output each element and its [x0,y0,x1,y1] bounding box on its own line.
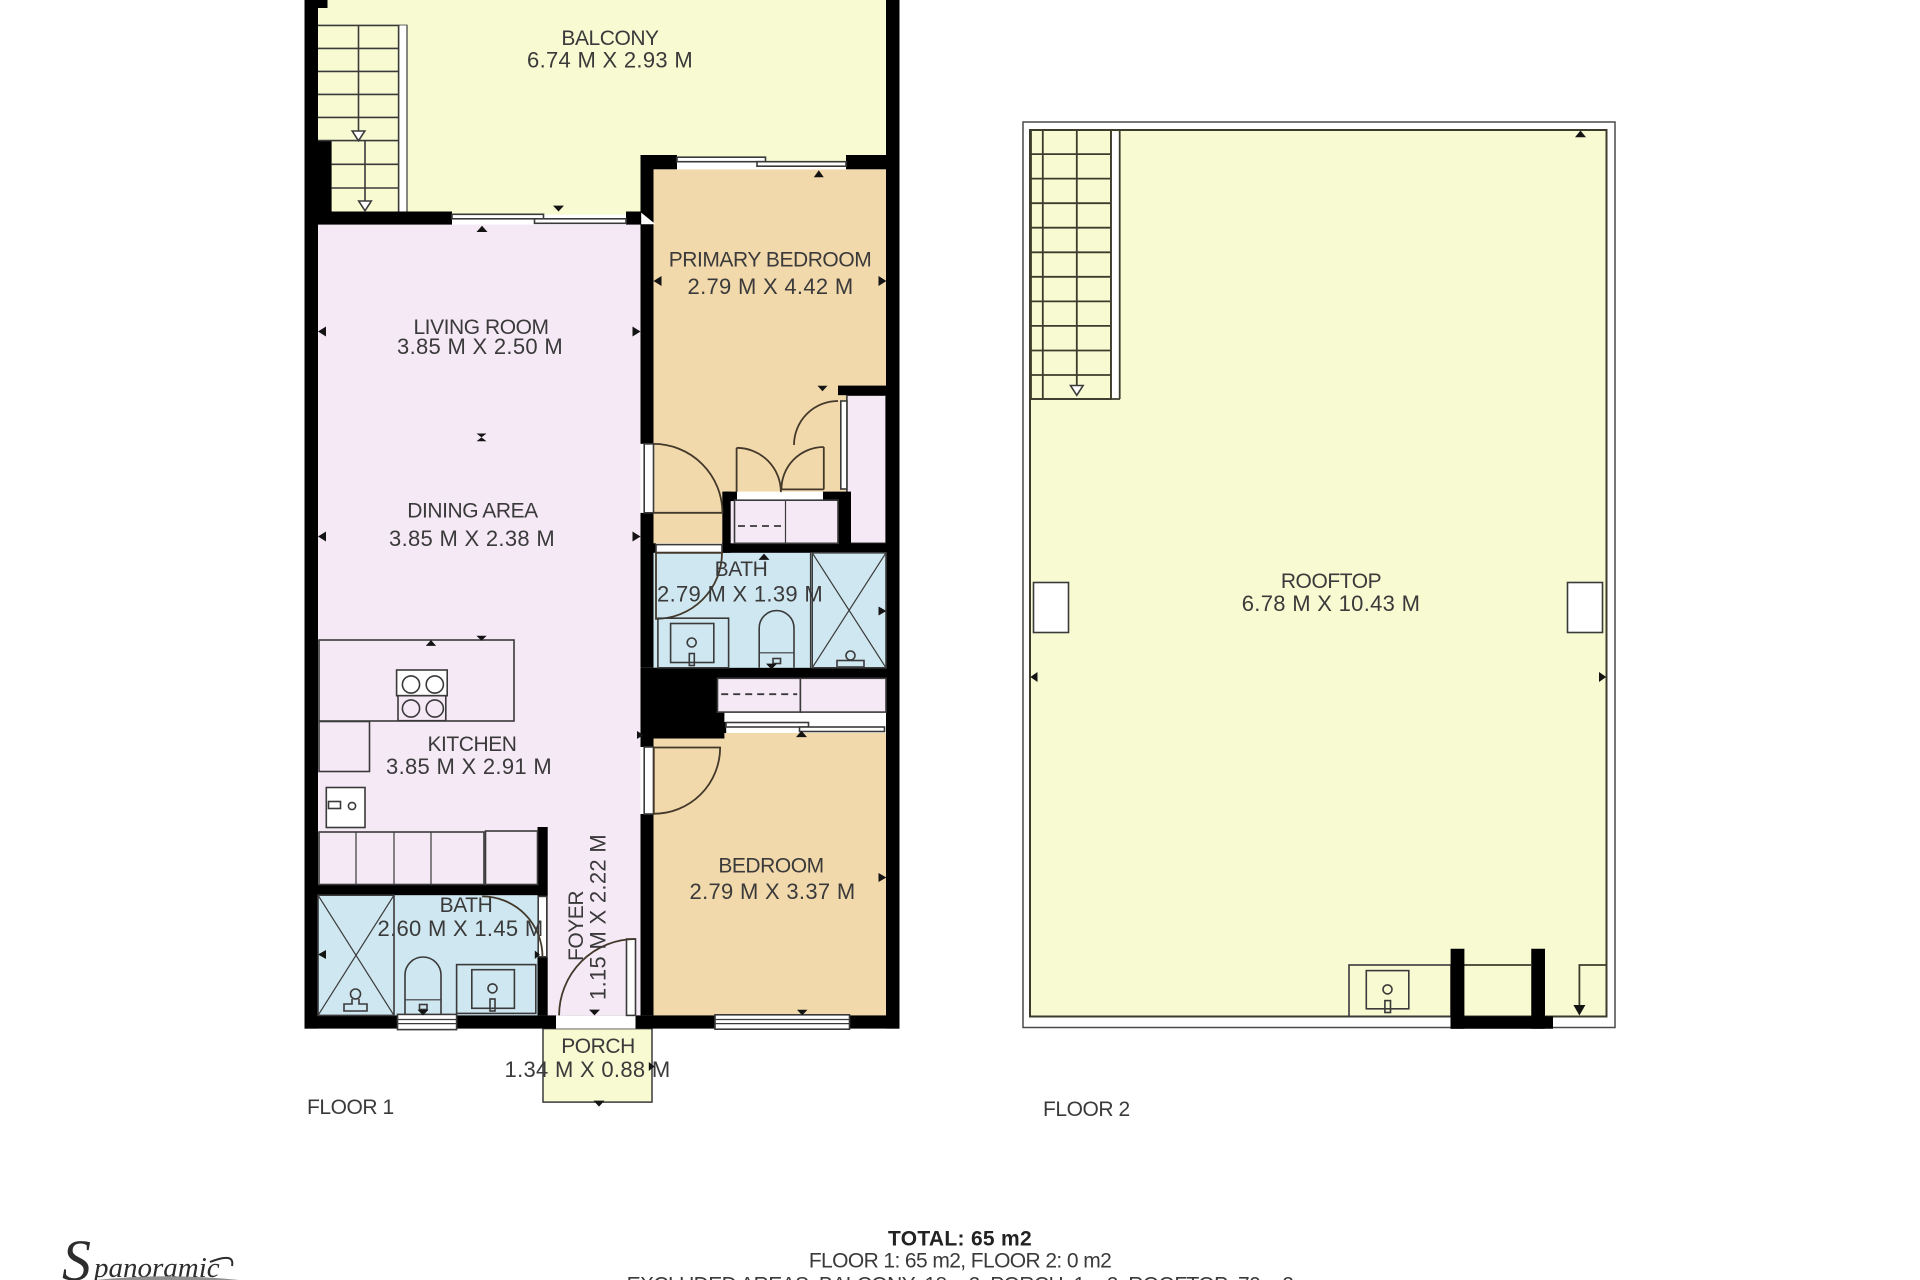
svg-text:3.85 M X 2.38 M: 3.85 M X 2.38 M [389,526,555,551]
svg-text:EXCLUDED AREAS: BALCONY: 18 m2: EXCLUDED AREAS: BALCONY: 18 m2, PORCH: 1… [627,1274,1294,1280]
svg-text:6.78 M X 10.43 M: 6.78 M X 10.43 M [1242,591,1420,616]
svg-text:6.74 M X 2.93 M: 6.74 M X 2.93 M [527,48,693,73]
svg-text:2.60 M X 1.45 M: 2.60 M X 1.45 M [378,916,544,941]
svg-text:FLOOR 1: FLOOR 1 [307,1096,394,1119]
svg-text:BATH: BATH [440,894,493,917]
svg-text:FLOOR 2: FLOOR 2 [1043,1098,1130,1121]
svg-text:panoramic: panoramic [92,1252,220,1280]
svg-text:2.79 M X 4.42 M: 2.79 M X 4.42 M [688,274,854,299]
svg-text:PORCH: PORCH [561,1035,635,1058]
svg-text:TOTAL: 65 m2: TOTAL: 65 m2 [888,1228,1032,1251]
svg-text:BATH: BATH [715,558,768,581]
svg-text:3.85 M X 2.50 M: 3.85 M X 2.50 M [397,334,563,359]
svg-text:DINING AREA: DINING AREA [407,500,538,523]
svg-text:S: S [62,1228,91,1280]
svg-text:3.85 M X 2.91 M: 3.85 M X 2.91 M [386,754,552,779]
svg-text:2.79 M X 3.37 M: 2.79 M X 3.37 M [690,879,856,904]
svg-text:1.15 M X 2.22 M: 1.15 M X 2.22 M [586,834,611,1000]
svg-text:BEDROOM: BEDROOM [718,855,823,878]
svg-text:KITCHEN: KITCHEN [427,733,516,756]
svg-text:FLOOR 1: 65 m2, FLOOR 2: 0 m2: FLOOR 1: 65 m2, FLOOR 2: 0 m2 [809,1250,1111,1273]
svg-text:PRIMARY BEDROOM: PRIMARY BEDROOM [669,249,872,272]
svg-text:2.79 M X 1.39 M: 2.79 M X 1.39 M [657,582,823,607]
svg-text:1.34 M X 0.88 M: 1.34 M X 0.88 M [505,1057,671,1082]
svg-text:ROOFTOP: ROOFTOP [1281,570,1381,593]
